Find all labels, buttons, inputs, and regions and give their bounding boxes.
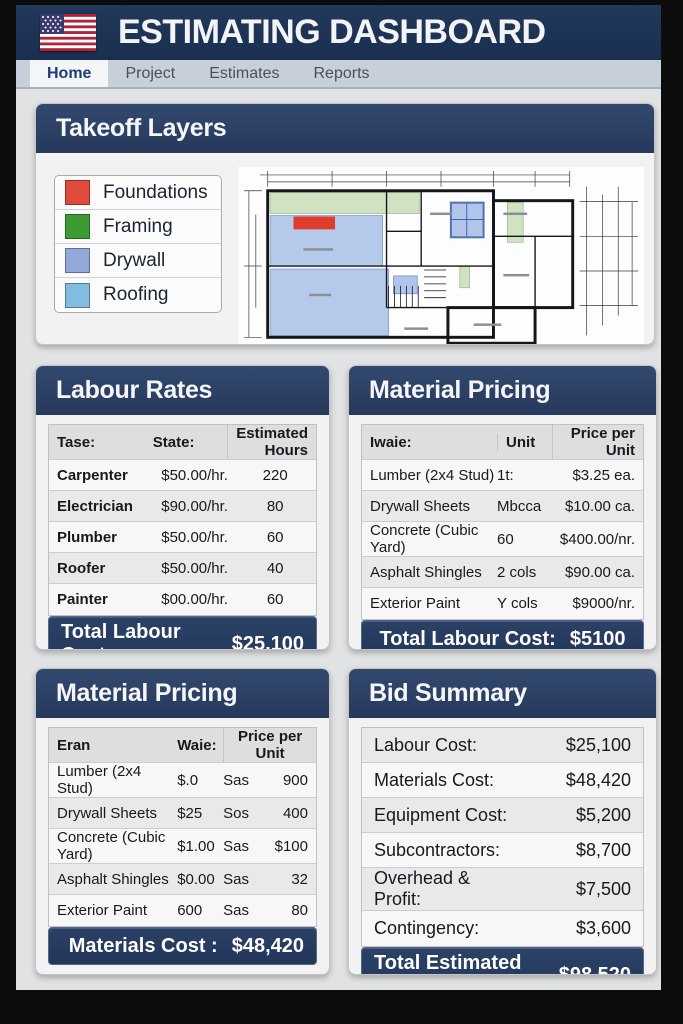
total-labour-cost-bar: Total Labour Cost: $25,100 — [48, 616, 317, 650]
material-pricing-title: Material Pricing — [349, 366, 656, 415]
table-row[interactable]: Drywall Sheets Mbcca $10.00 ca. — [362, 491, 643, 522]
table-row[interactable]: Equipment Cost: $5,200 — [362, 798, 643, 833]
unit-cell: Y cols — [497, 595, 551, 612]
item-cell: Drywall Sheets — [370, 498, 497, 515]
price-cell: $10.00 ca. — [552, 498, 636, 515]
unit-cell: 2 cols — [497, 564, 551, 581]
table-row[interactable]: Materials Cost: $48,420 — [362, 763, 643, 798]
table-row[interactable]: Labour Cost: $25,100 — [362, 728, 643, 763]
material-pricing-panel-bottom: Material Pricing Eran Waie: Price per Un… — [35, 668, 330, 975]
legend-label: Drywall — [103, 250, 165, 272]
table-header-row: Eran Waie: Price per Unit — [49, 728, 316, 763]
price-cell: $9000/nr. — [552, 595, 636, 612]
nav-bar: Home Project Estimates Reports — [16, 60, 661, 89]
unit-cell: Mbcca — [497, 498, 551, 515]
legend-label: Foundations — [103, 182, 208, 204]
cost-label: Materials Cost: — [374, 770, 514, 791]
rate-cell: $0.00 — [177, 871, 223, 888]
table-header-row: Tase: State: Estimated Hours — [49, 425, 316, 460]
table-row[interactable]: Drywall Sheets $25 Sos 400 — [49, 798, 316, 829]
unit-cell: Sas — [223, 838, 262, 855]
col-header: Waie: — [177, 737, 223, 754]
legend-item-roofing[interactable]: Roofing — [55, 278, 221, 312]
table-row[interactable]: Contingency: $3,600 — [362, 911, 643, 946]
tab-estimates[interactable]: Estimates — [192, 60, 296, 87]
item-cell: Asphalt Shingles — [370, 564, 497, 581]
material-pricing-title: Material Pricing — [36, 669, 329, 718]
unit-cell: 1t: — [497, 467, 551, 484]
cost-value: $8,700 — [514, 840, 631, 861]
col-header: Estimated Hours — [227, 425, 308, 459]
table-row[interactable]: Plumber $50.00/hr. 60 — [49, 522, 316, 553]
page-title: ESTIMATING DASHBOARD — [118, 13, 546, 52]
item-cell: Lumber (2x4 Stud) — [370, 467, 497, 484]
floor-plan[interactable] — [238, 167, 644, 345]
table-row[interactable]: Exterior Paint Y cols $9000/nr. — [362, 588, 643, 619]
total-label: Total Labour Cost: — [61, 621, 218, 650]
table-row[interactable]: Painter $00.00/hr. 60 — [49, 584, 316, 615]
hours-cell: 60 — [242, 591, 308, 608]
tab-project[interactable]: Project — [108, 60, 192, 87]
unit-cell: 60 — [497, 531, 551, 548]
table-row[interactable]: Concrete (Cubic Yard) $1.00 Sas $100 — [49, 829, 316, 864]
cost-label: Labour Cost: — [374, 735, 514, 756]
tab-home[interactable]: Home — [30, 60, 108, 87]
unit-cell: Sas — [223, 871, 262, 888]
col-header: State: — [153, 434, 228, 451]
tab-reports[interactable]: Reports — [297, 60, 387, 87]
table-row[interactable]: Lumber (2x4 Stud) $.0 Sas 900 — [49, 763, 316, 798]
item-cell: Exterior Paint — [370, 595, 497, 612]
item-cell: Asphalt Shingles — [57, 871, 177, 888]
rate-cell: $90.00/hr. — [161, 498, 242, 515]
material-pricing-table: Iwaie: Unit Price per Unit Lumber (2x4 S… — [361, 424, 644, 620]
item-cell: Drywall Sheets — [57, 805, 177, 822]
rate-cell: $50.00/hr. — [161, 560, 242, 577]
rate-cell: $50.00/hr. — [161, 467, 242, 484]
total-value: $5100 — [570, 628, 626, 651]
hours-cell: 40 — [242, 560, 308, 577]
drywall-swatch-icon — [65, 248, 90, 273]
total-value: $48,420 — [232, 935, 304, 958]
rate-cell: $.0 — [177, 772, 223, 789]
table-row[interactable]: Overhead & Profit: $7,500 — [362, 868, 643, 911]
trade-cell: Painter — [57, 591, 161, 608]
unit-cell: Sas — [223, 902, 262, 919]
cost-value: $5,200 — [514, 805, 631, 826]
material-pricing-panel-top: Material Pricing Iwaie: Unit Price per U… — [348, 365, 657, 650]
cost-value: $25,100 — [514, 735, 631, 756]
table-row[interactable]: Concrete (Cubic Yard) 60 $400.00/nr. — [362, 522, 643, 557]
labour-rates-table: Tase: State: Estimated Hours Carpenter $… — [48, 424, 317, 616]
item-cell: Exterior Paint — [57, 902, 177, 919]
page: { "header": { "title": "ESTIMATING DASHB… — [0, 0, 683, 1024]
item-cell: Lumber (2x4 Stud) — [57, 763, 177, 797]
dashboard-screen: ESTIMATING DASHBOARD Home Project Estima… — [16, 5, 661, 990]
unit-cell: Sas — [223, 772, 262, 789]
app-header: ESTIMATING DASHBOARD — [16, 5, 661, 60]
rate-cell: 600 — [177, 902, 223, 919]
cost-label: Overhead & Profit: — [374, 868, 514, 910]
total-value: $98,520 — [559, 964, 631, 976]
framing-swatch-icon — [65, 214, 90, 239]
legend-item-drywall[interactable]: Drywall — [55, 244, 221, 278]
hours-cell: 60 — [242, 529, 308, 546]
cost-value: $3,600 — [514, 918, 631, 939]
rate-cell: $25 — [177, 805, 223, 822]
takeoff-layers-body: Foundations Framing Drywall Roofing — [36, 153, 654, 345]
trade-cell: Roofer — [57, 560, 161, 577]
bid-summary-panel: Bid Summary Labour Cost: $25,100 Materia… — [348, 668, 657, 975]
labour-rates-panel: Labour Rates Tase: State: Estimated Hour… — [35, 365, 330, 650]
col-header: Iwaie: — [370, 434, 497, 451]
price-cell: 400 — [262, 805, 308, 822]
price-cell: $90.00 ca. — [552, 564, 636, 581]
legend-label: Roofing — [103, 284, 169, 306]
table-row[interactable]: Exterior Paint 600 Sas 80 — [49, 895, 316, 926]
cost-value: $48,420 — [514, 770, 631, 791]
takeoff-layers-title: Takeoff Layers — [36, 104, 654, 153]
hours-cell: 220 — [242, 467, 308, 484]
trade-cell: Electrician — [57, 498, 161, 515]
total-label: Materials Cost : — [69, 935, 218, 958]
rate-cell: $00.00/hr. — [161, 591, 242, 608]
takeoff-layers-panel: Takeoff Layers Foundations Framing Drywa… — [35, 103, 655, 345]
price-cell: 32 — [262, 871, 308, 888]
table-row[interactable]: Subcontractors: $8,700 — [362, 833, 643, 868]
material-pricing-table: Eran Waie: Price per Unit Lumber (2x4 St… — [48, 727, 317, 927]
total-label: Total Labour Cost: — [380, 628, 556, 651]
table-header-row: Iwaie: Unit Price per Unit — [362, 425, 643, 460]
table-row[interactable]: Asphalt Shingles 2 cols $90.00 ca. — [362, 557, 643, 588]
price-cell: 80 — [262, 902, 308, 919]
unit-cell: Sos — [223, 805, 262, 822]
cost-value: $7,500 — [514, 879, 631, 900]
price-cell: $400.00/nr. — [552, 531, 636, 548]
cost-label: Subcontractors: — [374, 840, 514, 861]
cost-label: Equipment Cost: — [374, 805, 514, 826]
item-cell: Concrete (Cubic Yard) — [57, 829, 177, 863]
col-header: Price per Unit — [552, 425, 636, 459]
total-estimated-cost-bar: Total Estimated Cost: $98,520 — [361, 947, 644, 975]
foundations-swatch-icon — [65, 180, 90, 205]
total-label: Total Estimated Cost: — [374, 952, 549, 975]
hours-cell: 80 — [242, 498, 308, 515]
col-header: Price per Unit — [223, 728, 308, 762]
trade-cell: Carpenter — [57, 467, 161, 484]
total-value: $25,100 — [232, 633, 304, 651]
layer-legend: Foundations Framing Drywall Roofing — [54, 175, 222, 313]
bid-summary-title: Bid Summary — [349, 669, 656, 718]
col-header: Unit — [497, 434, 551, 451]
labour-rates-title: Labour Rates — [36, 366, 329, 415]
cost-label: Contingency: — [374, 918, 514, 939]
col-header: Tase: — [57, 434, 153, 451]
legend-label: Framing — [103, 216, 173, 238]
materials-cost-bar: Materials Cost : $48,420 — [48, 927, 317, 965]
item-cell: Concrete (Cubic Yard) — [370, 522, 497, 556]
total-labour-cost-bar: Total Labour Cost: $5100 — [361, 620, 644, 650]
table-row[interactable]: Asphalt Shingles $0.00 Sas 32 — [49, 864, 316, 895]
legend-item-foundations[interactable]: Foundations — [55, 176, 221, 210]
price-cell: $100 — [262, 838, 308, 855]
table-row[interactable]: Carpenter $50.00/hr. 220 — [49, 460, 316, 491]
rate-cell: $50.00/hr. — [161, 529, 242, 546]
trade-cell: Plumber — [57, 529, 161, 546]
price-cell: 900 — [262, 772, 308, 789]
us-flag-icon — [40, 14, 96, 51]
table-row[interactable]: Lumber (2x4 Stud) 1t: $3.25 ea. — [362, 460, 643, 491]
legend-item-framing[interactable]: Framing — [55, 210, 221, 244]
col-header: Eran — [57, 737, 177, 754]
table-row[interactable]: Electrician $90.00/hr. 80 — [49, 491, 316, 522]
bid-summary-table: Labour Cost: $25,100 Materials Cost: $48… — [361, 727, 644, 947]
rate-cell: $1.00 — [177, 838, 223, 855]
roofing-swatch-icon — [65, 283, 90, 308]
table-row[interactable]: Roofer $50.00/hr. 40 — [49, 553, 316, 584]
price-cell: $3.25 ea. — [552, 467, 636, 484]
